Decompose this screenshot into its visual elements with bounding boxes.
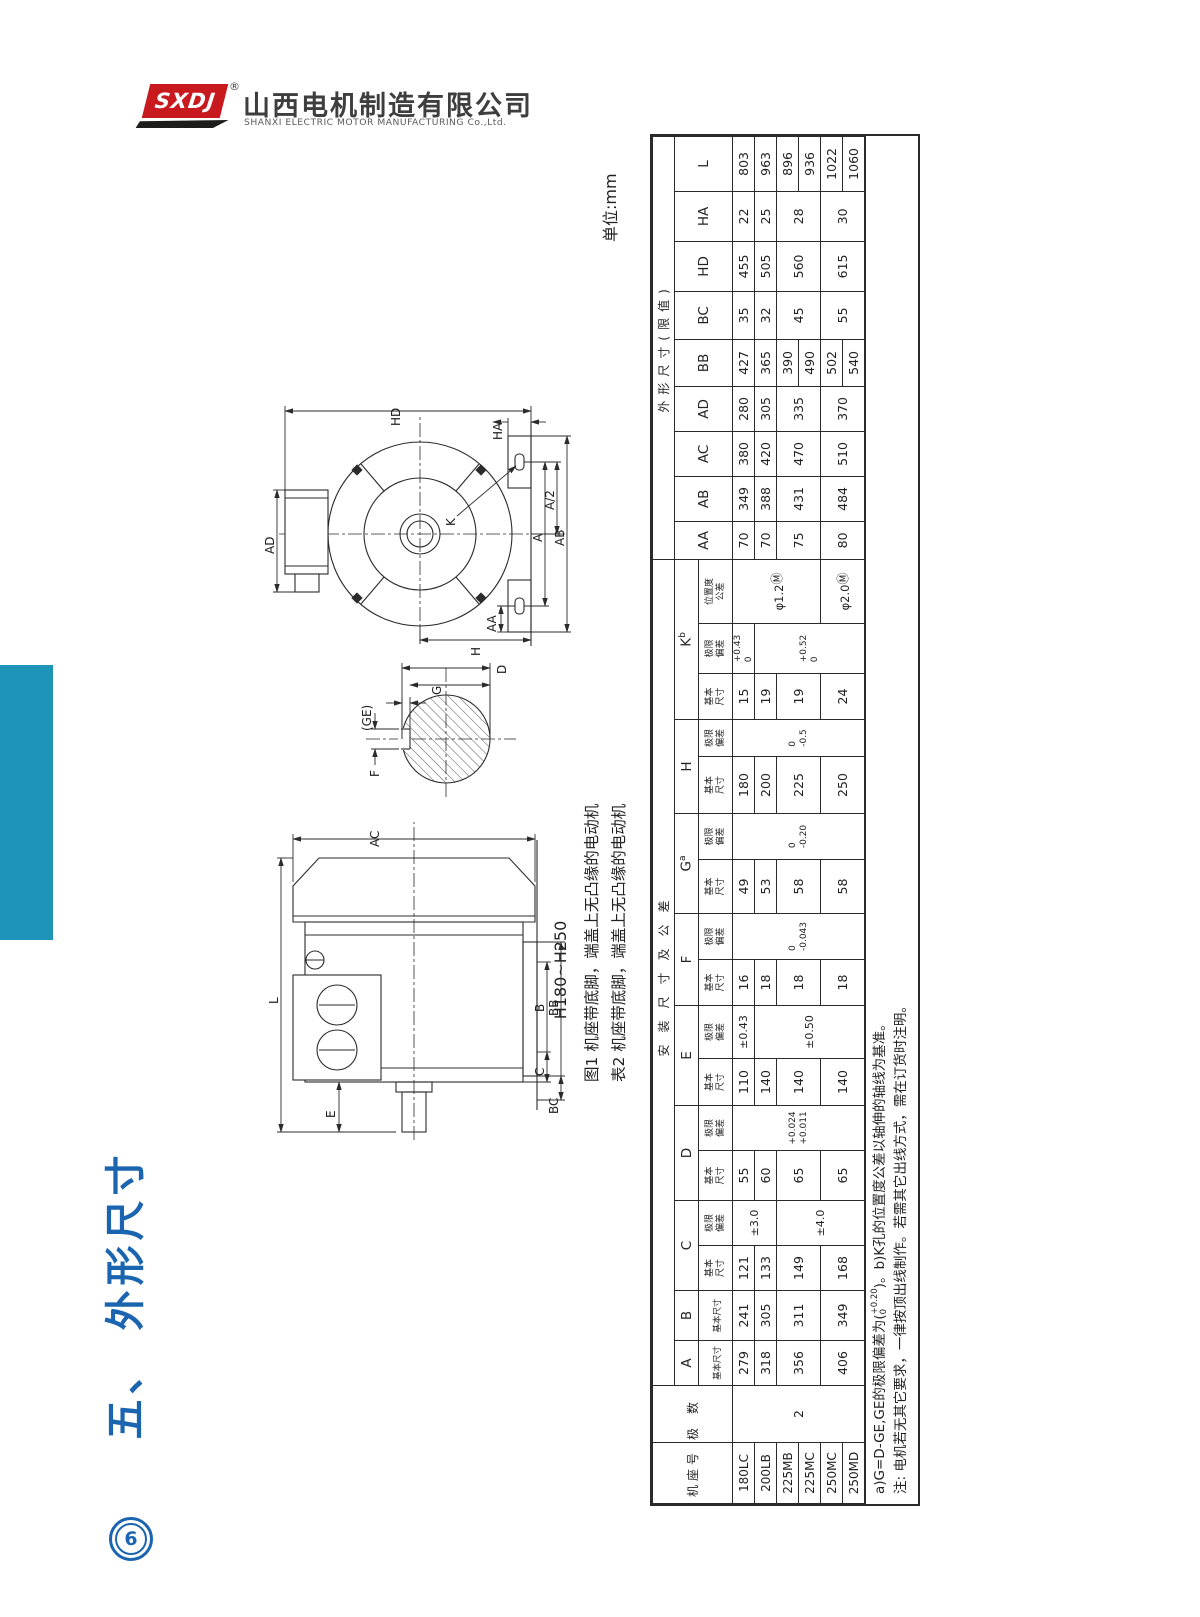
cell: 55 — [733, 1151, 755, 1201]
dim-label-D: D — [495, 665, 509, 674]
side-tab-bar — [0, 665, 53, 940]
cell-frame: 250MC — [821, 1443, 843, 1504]
sub-header-basic: 基本尺寸 — [699, 674, 733, 720]
cell: φ2.0Ⓜ — [821, 559, 865, 623]
dim-label-AA: AA — [485, 614, 499, 632]
sub-header-basic: 基本尺寸 — [699, 960, 733, 1006]
col-header-AA: AA — [675, 521, 733, 559]
sub-header-dev: 极限偏差 — [699, 1201, 733, 1246]
sub-header-dev: 极限偏差 — [699, 914, 733, 960]
col-header-frame: 机座号 — [653, 1443, 733, 1504]
cell: 0-0.043 — [733, 914, 865, 960]
cell: 490 — [799, 339, 821, 386]
cell: 70 — [733, 521, 755, 559]
cell: 388 — [755, 476, 777, 521]
cell-poles: 2 — [733, 1386, 865, 1443]
cell: 18 — [777, 960, 821, 1006]
cell: 80 — [821, 521, 865, 559]
cell: 18 — [755, 960, 777, 1006]
col-header-F: F — [675, 914, 699, 1006]
dim-label-A2: A/2 — [543, 490, 557, 510]
cell: 1022 — [821, 136, 843, 191]
cell: 75 — [777, 521, 821, 559]
cell: 560 — [777, 241, 821, 291]
cell: 390 — [777, 339, 799, 386]
cell: 311 — [777, 1291, 821, 1341]
sub-header-basic: 基本尺寸 — [699, 1246, 733, 1291]
dim-label-H: H — [469, 647, 483, 656]
cell: 431 — [777, 476, 821, 521]
sub-header-basic: 基本尺寸 — [699, 1291, 733, 1341]
figure-caption: 图1 机座带底脚，端盖上无凸缘的电动机 — [579, 804, 606, 1082]
unit-label: 单位:mm — [597, 132, 621, 242]
page-number-badge: 6 — [109, 1517, 153, 1561]
sub-header-basic: 基本尺寸 — [699, 757, 733, 814]
cell: 24 — [821, 674, 865, 720]
dim-label-BC: BC — [547, 1098, 561, 1114]
cell: 335 — [777, 386, 821, 431]
dim-label-C: C — [533, 1068, 547, 1076]
col-header-H: H — [675, 720, 699, 814]
cell: 540 — [843, 339, 865, 386]
col-header-A: A — [675, 1341, 699, 1386]
cell: 25 — [755, 191, 777, 241]
col-header-E: E — [675, 1006, 699, 1106]
cell: 58 — [821, 860, 865, 914]
cell: 0-0.20 — [733, 814, 865, 860]
rotated-sheet: 单位:mm 图1 机座带底脚，端盖上无凸缘的电动机 表2 机座带底脚，端盖上无凸… — [265, 120, 1065, 1610]
table-notes: a)G=D-GE,GE的极限偏差为(+0.200)。b)K孔的位置度公差以轴伸的… — [865, 136, 918, 1504]
dim-label-L: L — [267, 997, 281, 1004]
cell: φ1.2Ⓜ — [733, 559, 821, 623]
cell: 22 — [733, 191, 755, 241]
cell: 149 — [777, 1246, 821, 1291]
cell: 35 — [733, 291, 755, 339]
cell: 65 — [777, 1151, 821, 1201]
cell: 279 — [733, 1341, 755, 1386]
front-view-drawing: AD HD HA K AA H — [265, 397, 572, 662]
dim-label-HA: HA — [491, 422, 505, 440]
cell: 963 — [755, 136, 777, 191]
cell: 455 — [733, 241, 755, 291]
dim-label-AD: AD — [263, 537, 277, 554]
sub-header-basic: 基本尺寸 — [699, 860, 733, 914]
cell: ±3.0 — [733, 1201, 777, 1246]
cell: 140 — [755, 1059, 777, 1106]
logo-swoosh-icon — [136, 120, 229, 128]
col-header-K: Kb — [675, 559, 699, 719]
cell: 225 — [777, 757, 821, 814]
cell: +0.024+0.011 — [733, 1106, 865, 1151]
cell: +0.520 — [755, 624, 865, 674]
col-header-AB: AB — [675, 476, 733, 521]
sub-header-basic: 基本尺寸 — [699, 1151, 733, 1201]
dim-label-GE: (GE) — [360, 705, 374, 731]
col-header-HA: HA — [675, 191, 733, 241]
group-header-overall: 外形尺寸(限值) — [653, 136, 675, 559]
cell: 18 — [821, 960, 865, 1006]
section-title: 五、 外形尺寸 — [94, 1125, 150, 1465]
cell-frame: 250MD — [843, 1443, 865, 1504]
cell: +0.430 — [733, 624, 755, 674]
dim-label-BB: BB — [547, 1000, 561, 1016]
cell: 121 — [733, 1246, 755, 1291]
cell: 250 — [821, 757, 865, 814]
cell: 110 — [733, 1059, 755, 1106]
cell: 615 — [821, 241, 865, 291]
cell: 140 — [777, 1059, 821, 1106]
sub-header-dev: 极限偏差 — [699, 1106, 733, 1151]
cell: 370 — [821, 386, 865, 431]
cell: 505 — [755, 241, 777, 291]
cell: 280 — [733, 386, 755, 431]
cell: ±4.0 — [777, 1201, 865, 1246]
cell: 15 — [733, 674, 755, 720]
dim-label-E: E — [324, 1110, 338, 1118]
cell: 365 — [755, 339, 777, 386]
col-header-B: B — [675, 1291, 699, 1341]
cell: 45 — [777, 291, 821, 339]
cell: 305 — [755, 386, 777, 431]
cell: 318 — [755, 1341, 777, 1386]
dimension-table: 机座号 极数 安装尺寸及公差 外形尺寸(限值) A B C D E F Ga H… — [652, 136, 865, 1504]
cell: 1060 — [843, 136, 865, 191]
sub-header-basic: 基本尺寸 — [699, 1341, 733, 1386]
table-caption: 表2 机座带底脚，端盖上无凸缘的电动机 — [606, 804, 633, 1082]
page-number: 6 — [115, 1523, 147, 1555]
cell-frame: 225MB — [777, 1443, 799, 1504]
col-header-poles: 极数 — [653, 1386, 733, 1443]
cell: 936 — [799, 136, 821, 191]
cell: 53 — [755, 860, 777, 914]
dim-label-HD: HD — [389, 408, 403, 426]
dim-label-AC: AC — [368, 831, 382, 847]
cell: 380 — [733, 431, 755, 476]
col-header-HD: HD — [675, 241, 733, 291]
cell-frame: 180LC — [733, 1443, 755, 1504]
dim-label-F: F — [368, 770, 382, 777]
dim-label-K: K — [444, 517, 458, 526]
logo-flag: SXDJ — [142, 84, 228, 118]
cell-frame: 225MC — [799, 1443, 821, 1504]
dim-label-AB: AB — [553, 530, 567, 546]
cell: 28 — [777, 191, 821, 241]
sub-header-dev: 极限偏差 — [699, 624, 733, 674]
captions: 图1 机座带底脚，端盖上无凸缘的电动机 表2 机座带底脚，端盖上无凸缘的电动机 — [579, 804, 633, 1082]
sub-header-basic: 基本尺寸 — [699, 1059, 733, 1106]
cell: 305 — [755, 1291, 777, 1341]
col-header-AD: AD — [675, 386, 733, 431]
cell: 470 — [777, 431, 821, 476]
note-line-1: a)G=D-GE,GE的极限偏差为(+0.200)。b)K孔的位置度公差以轴伸的… — [870, 146, 891, 1494]
cell: 484 — [821, 476, 865, 521]
sub-header-pos: 位置度公差 — [699, 559, 733, 623]
cell: 349 — [821, 1291, 865, 1341]
cell: 60 — [755, 1151, 777, 1201]
document-page: SXDJ ® 山西电机制造有限公司 SHANXI ELECTRIC MOTOR … — [0, 0, 1200, 1617]
cell: 427 — [733, 339, 755, 386]
col-header-AC: AC — [675, 431, 733, 476]
note-line-2: 注: 电机若无其它要求，一律按顶出线制作。若需其它出线方式，需在订货时注明。 — [891, 146, 912, 1494]
cell: 16 — [733, 960, 755, 1006]
group-header-install: 安装尺寸及公差 — [653, 559, 675, 1385]
cell: 510 — [821, 431, 865, 476]
cell: 349 — [733, 476, 755, 521]
cell-frame: 200LB — [755, 1443, 777, 1504]
cell: 0-0.5 — [733, 720, 865, 757]
cell: 58 — [777, 860, 821, 914]
cell: 241 — [733, 1291, 755, 1341]
dim-label-G: G — [430, 686, 444, 695]
dim-label-B: B — [533, 1004, 547, 1012]
cell: 49 — [733, 860, 755, 914]
cell: 70 — [755, 521, 777, 559]
col-header-BB: BB — [675, 339, 733, 386]
registered-mark-icon: ® — [229, 80, 240, 93]
cell: 65 — [821, 1151, 865, 1201]
col-header-D: D — [675, 1106, 699, 1201]
cell: 30 — [821, 191, 865, 241]
dim-label-A: A — [531, 533, 545, 542]
col-header-G: Ga — [675, 814, 699, 914]
shaft-section-drawing: F (GE) G D — [341, 657, 533, 807]
cell: 133 — [755, 1246, 777, 1291]
cell: 19 — [755, 674, 777, 720]
cell: 502 — [821, 339, 843, 386]
sub-header-dev: 极限偏差 — [699, 814, 733, 860]
sub-header-dev: 极限偏差 — [699, 1006, 733, 1059]
logo-brand-text: SXDJ — [153, 89, 217, 113]
dimension-table-box: 机座号 极数 安装尺寸及公差 外形尺寸(限值) A B C D E F Ga H… — [650, 134, 920, 1506]
col-header-L: L — [675, 136, 733, 191]
cell: 140 — [821, 1059, 865, 1106]
cell: 19 — [777, 674, 821, 720]
cell: 356 — [777, 1341, 821, 1386]
col-header-BC: BC — [675, 291, 733, 339]
cell: 420 — [755, 431, 777, 476]
cell: 168 — [821, 1246, 865, 1291]
cell: 406 — [821, 1341, 865, 1386]
cell: 180 — [733, 757, 755, 814]
cell: 896 — [777, 136, 799, 191]
cell: 32 — [755, 291, 777, 339]
cell: ±0.43 — [733, 1006, 755, 1059]
cell: 55 — [821, 291, 865, 339]
cell: 803 — [733, 136, 755, 191]
side-view-drawing: L E AC C B BC BB — [269, 820, 571, 1140]
sub-header-dev: 极限偏差 — [699, 720, 733, 757]
cell: 200 — [755, 757, 777, 814]
col-header-C: C — [675, 1201, 699, 1291]
cell: ±0.50 — [755, 1006, 865, 1059]
